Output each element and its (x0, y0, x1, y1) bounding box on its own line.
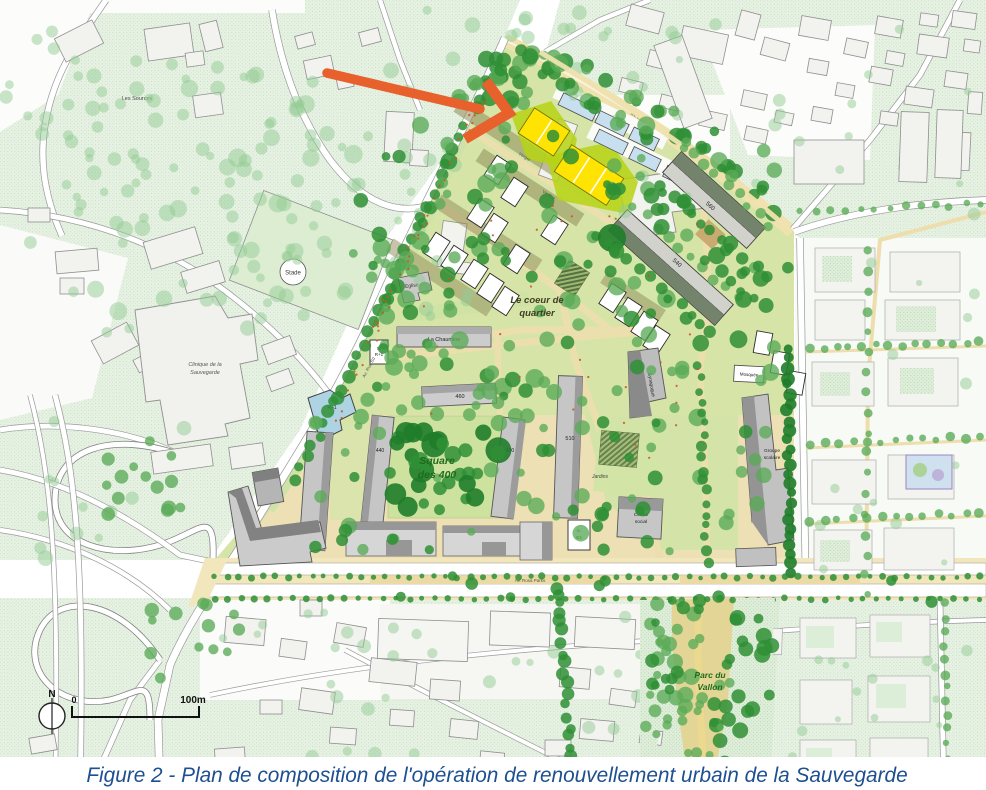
svg-text:scolaire: scolaire (764, 455, 781, 461)
svg-text:Figure 2 - Plan de composition: Figure 2 - Plan de composition de l'opér… (86, 764, 907, 787)
svg-text:0: 0 (71, 695, 76, 705)
svg-text:Le coeur de: Le coeur de (510, 295, 564, 306)
svg-text:Vallon: Vallon (697, 682, 722, 692)
svg-text:quartier: quartier (519, 308, 556, 319)
svg-text:Square: Square (419, 455, 455, 467)
svg-text:Sauvegarde: Sauvegarde (190, 370, 220, 376)
svg-text:Jardins: Jardins (591, 474, 609, 480)
svg-text:Parc du: Parc du (694, 670, 726, 680)
svg-text:N: N (48, 689, 55, 700)
svg-text:510: 510 (565, 436, 574, 442)
svg-text:Stade: Stade (285, 271, 301, 277)
svg-text:des 400: des 400 (418, 469, 457, 481)
svg-text:Mosquée: Mosquée (740, 372, 759, 378)
svg-text:100m: 100m (180, 695, 206, 706)
svg-text:460: 460 (455, 394, 464, 400)
svg-text:440: 440 (376, 448, 385, 454)
svg-text:social: social (635, 519, 647, 525)
svg-text:Clinique de la: Clinique de la (188, 362, 221, 368)
svg-text:Groupe: Groupe (764, 448, 780, 454)
